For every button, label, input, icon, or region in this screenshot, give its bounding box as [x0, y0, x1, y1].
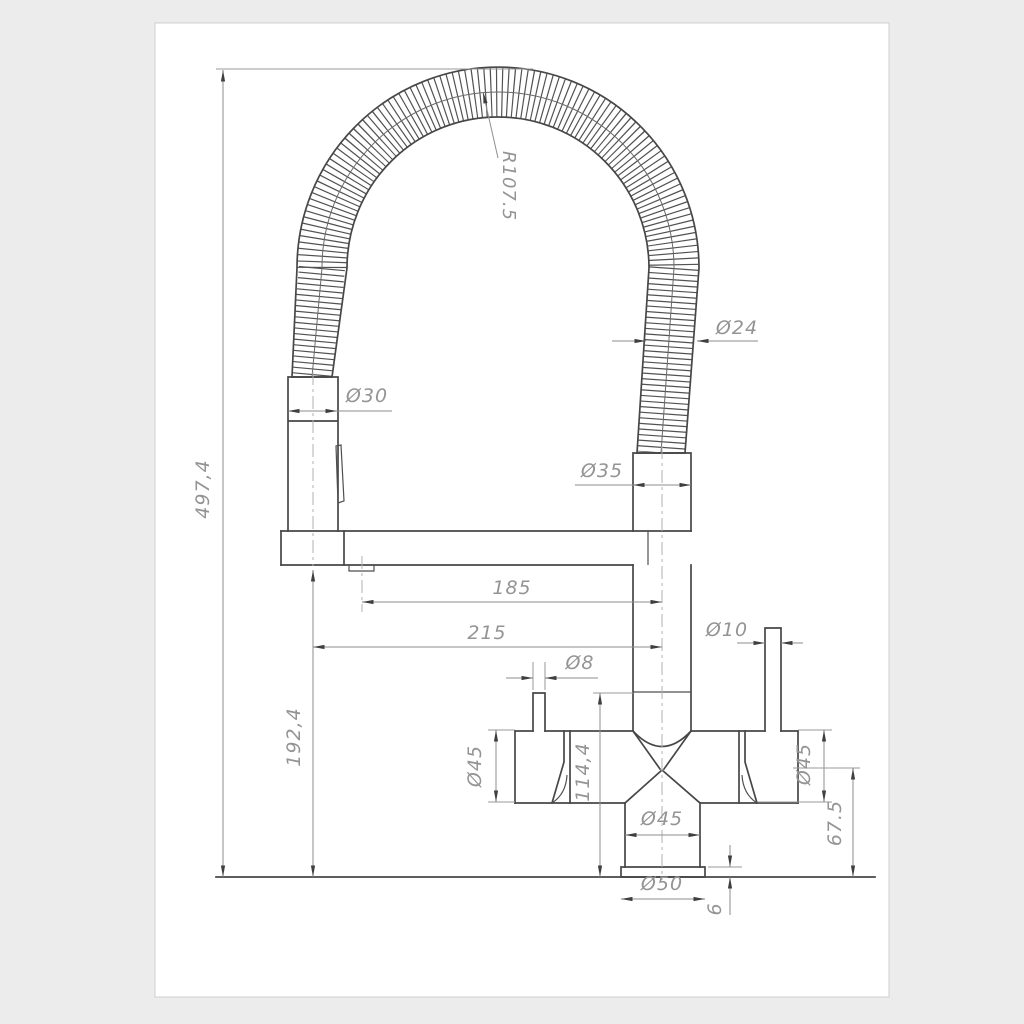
dim-collar-diameter: Ø30: [345, 385, 388, 407]
dim-overall-height: 497,4: [192, 459, 214, 518]
dim-total-reach: 215: [467, 622, 506, 644]
dim-hose-bend-radius: R107.5: [498, 151, 519, 221]
dim-spout-underside-height: 192,4: [283, 707, 305, 766]
dim-spout-reach: 185: [492, 577, 531, 599]
paper-sheet: [155, 23, 889, 997]
dim-hose-diameter: Ø24: [715, 317, 758, 339]
dim-body-top-height: 114,4: [572, 742, 594, 801]
dim-base-column-diameter: Ø45: [640, 808, 683, 830]
dim-left-handle-diameter: Ø8: [564, 652, 594, 674]
dim-right-handle-diameter: Ø10: [705, 619, 748, 641]
dim-right-body-bottom-height: 67.5: [824, 800, 846, 846]
dim-left-valve-diameter: Ø45: [464, 745, 486, 788]
dim-flange-diameter: Ø50: [640, 873, 683, 895]
dim-connector-diameter: Ø35: [580, 460, 623, 482]
faucet-dimensional-drawing: 497,4 192,4 R107.5 Ø24 Ø30 Ø35 185 215 Ø…: [0, 0, 1024, 1024]
dim-right-valve-diameter: Ø45: [793, 743, 815, 786]
technical-drawing-page: 497,4 192,4 R107.5 Ø24 Ø30 Ø35 185 215 Ø…: [0, 0, 1024, 1024]
dim-flange-height: 6: [704, 902, 726, 915]
